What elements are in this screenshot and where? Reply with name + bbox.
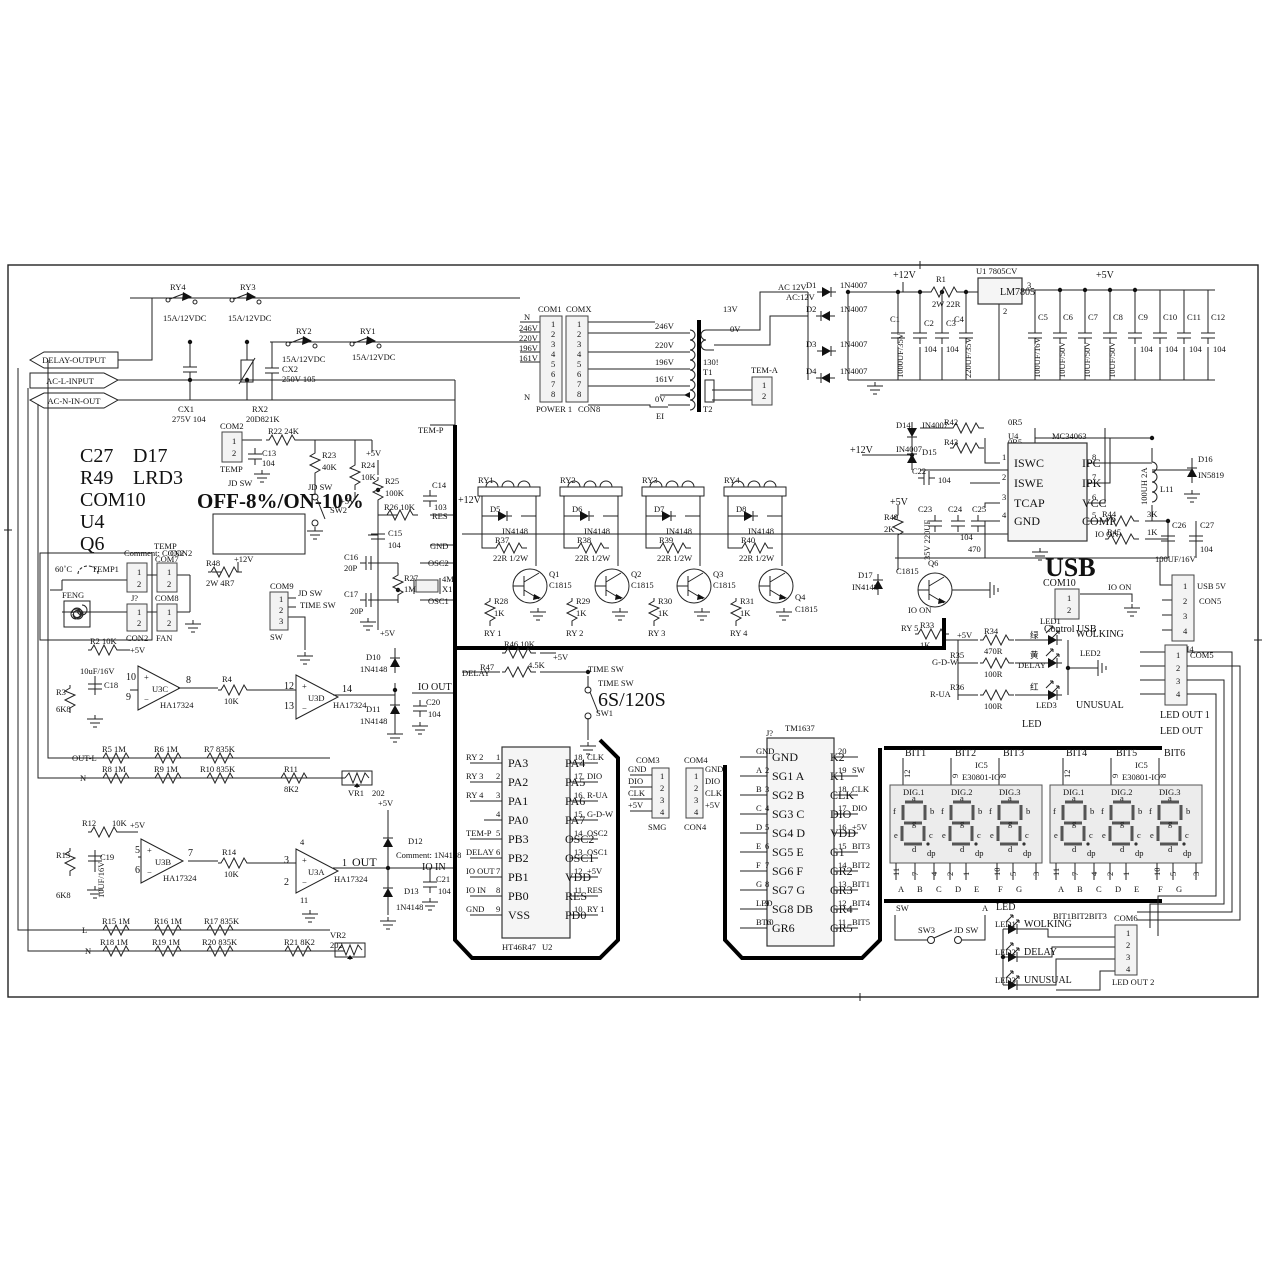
tm-net: CLK: [852, 784, 870, 794]
relay-ry1-label: RY1: [360, 326, 376, 336]
note-lrd3: LRD3: [133, 467, 183, 489]
led2-ref: LED2: [1080, 648, 1101, 658]
con2b-pin: 2: [137, 618, 141, 628]
c22-ref: C22: [912, 466, 926, 476]
d12-p5: +5V: [378, 798, 394, 808]
seg-a: a: [1168, 793, 1172, 803]
com4b-sig: CLK: [705, 788, 723, 798]
disp-bp: 7: [1070, 872, 1080, 876]
c22-val: 104: [938, 475, 952, 485]
tm-net: +5V: [852, 822, 868, 832]
ch1-qv: C1815: [549, 580, 572, 590]
tm-port: SG8 DB: [772, 902, 813, 916]
ch4-net: RY 4: [730, 628, 748, 638]
seg-c: c: [929, 830, 933, 840]
d4-ref: D4: [806, 366, 817, 376]
com3-sig: GND: [628, 764, 646, 774]
r21-ref: R21 8K2: [284, 937, 315, 947]
seg-c: c: [1137, 830, 1141, 840]
c15-ref: C15: [388, 528, 402, 538]
u3a-ref: U3A: [308, 867, 325, 877]
led-block2: LED BIT1BIT2BIT3 LED1 WOLKING LED2 DELAY…: [995, 902, 1154, 990]
wire-n: N: [524, 312, 530, 322]
feng-label: FENG: [62, 590, 84, 600]
temp-input: COM2 1 2 TEMP JD SW R22 24K C13 104 R23 …: [220, 421, 454, 638]
r14-ref: R14: [222, 847, 237, 857]
ch4-rv: 22R 1/2W: [739, 553, 774, 563]
u3b-pin7: 7: [188, 848, 193, 859]
com4b-sig: DIO: [705, 776, 720, 786]
net-temp: TEM-P: [418, 425, 444, 435]
r16-ref: R16 1M: [154, 916, 183, 926]
tm-pin-num: 6: [765, 841, 769, 851]
c8-val: 10UF/50V: [1107, 341, 1117, 378]
d15-val: IN4007: [896, 444, 922, 454]
tm-pin-num: 1: [765, 746, 769, 756]
d12-comment: Comment: 1N4148: [396, 850, 461, 860]
drv-plus12: +12V: [458, 495, 482, 506]
tm-net: F: [756, 860, 761, 870]
r18-ref: R18 1M: [100, 937, 129, 947]
com9-sw: SW: [270, 632, 283, 642]
r11-val: 8K2: [284, 784, 299, 794]
l11-val: 100UH 2A: [1139, 467, 1149, 505]
d15-ref: D15: [922, 447, 937, 457]
relay-ry4-label: RY4: [170, 282, 186, 292]
com4b-pin: 2: [694, 783, 698, 793]
driver-ch1: RY1 D5 IN4148 R37 22R 1/2W Q1 C1815 R28 …: [478, 475, 572, 638]
c7-ref: C7: [1088, 312, 1098, 322]
disp-abc: C: [936, 884, 942, 894]
disp-abc: F: [998, 884, 1003, 894]
r22-ref: R22 24K: [268, 426, 300, 436]
r25-ref: R25: [385, 476, 399, 486]
disp-bp: 11: [1051, 868, 1061, 876]
r42-val: 0R5: [1008, 417, 1022, 427]
com10-pin: 1: [1067, 593, 1071, 603]
led3-red-cn: 红: [1030, 682, 1039, 692]
seg-b: b: [1090, 806, 1094, 816]
r49-ref: R49: [884, 512, 898, 522]
tema-pin: 2: [762, 391, 766, 401]
c12-val: 104: [1213, 344, 1227, 354]
flag-ac-l-input: AC-L-INPUT: [46, 376, 94, 386]
r46-ref: R46 10K: [504, 639, 536, 649]
mcu-pin-num: 7: [496, 866, 500, 876]
com10-pin: 2: [1067, 605, 1071, 615]
tm-pin-num: 11: [838, 917, 846, 927]
com3-pin: 2: [660, 783, 664, 793]
tap-220: 220V: [655, 340, 675, 350]
led2-led-label: LED: [996, 902, 1015, 913]
c10-ref: C10: [1163, 312, 1177, 322]
fan-label: FAN: [156, 633, 172, 643]
tm-net: E: [756, 841, 761, 851]
con2-pin: 2: [137, 579, 141, 589]
com9-jdsw: JD SW: [298, 588, 322, 598]
c9-val: 104: [1140, 344, 1154, 354]
wire-161v: 161V: [519, 353, 539, 363]
u3a-pin4: 4: [300, 837, 305, 847]
c21-val: 104: [438, 886, 452, 896]
d11-ref: D11: [366, 704, 380, 714]
mcu-block: RY 2 RY 3 RY 4 TEM-P DELAY IO OUT IO IN …: [466, 747, 613, 952]
com8-label: COM8: [155, 593, 179, 603]
com1-pin: 1: [551, 319, 555, 329]
sec-0v: 0V: [730, 324, 741, 334]
dcdc-plus5: +5V: [890, 497, 909, 508]
c5-val: 100UF/16V: [1032, 337, 1042, 378]
led1-p5: +5V: [957, 630, 973, 640]
seg-c: c: [1185, 830, 1189, 840]
r25-val: 100K: [385, 488, 405, 498]
con2-label: CON2: [126, 633, 148, 643]
dcdc-section: R42 0R5 R43 0R5 D14 IN4007 IN4007 D15 +1…: [850, 417, 1224, 564]
r24-p5b: +5V: [340, 496, 356, 506]
mcu-port: PA1: [508, 794, 528, 808]
disp-bp: 1: [1121, 872, 1131, 876]
disp-abc: D: [955, 884, 961, 894]
net-out: OUT: [352, 855, 377, 869]
r48-val: 2W 4R7: [206, 578, 234, 588]
rx2-val: 20D821K: [246, 414, 280, 424]
tap-246: 246V: [655, 321, 675, 331]
mcu-pin-num: 18: [574, 752, 583, 762]
mcu-net: GND: [466, 904, 484, 914]
usb-io-on: IO ON: [1108, 582, 1131, 592]
net-gnd: GND: [430, 541, 448, 551]
mcu-net: OSC2: [587, 828, 608, 838]
seg-f: f: [989, 806, 992, 816]
r7-ref: R7 835K: [204, 744, 236, 754]
com6-label: COM6: [1114, 913, 1138, 923]
c11-ref: C11: [1187, 312, 1201, 322]
d3-val: 1N4007: [840, 339, 867, 349]
cx2-val: 250V 105: [282, 374, 316, 384]
tm-pin-num: 14: [838, 860, 847, 870]
com2-label: COM2: [220, 421, 244, 431]
mcu-net: DIO: [587, 771, 602, 781]
r47-ref: R47: [480, 662, 494, 672]
ch4-q: Q4: [795, 592, 806, 602]
u3a-part: HA17324: [334, 874, 368, 884]
seg-a: a: [1120, 793, 1124, 803]
r24-ref: R24: [361, 460, 376, 470]
net-l: L: [82, 925, 87, 935]
com9-pin: 2: [279, 605, 283, 615]
r23-ref: R23: [322, 450, 336, 460]
com4-pin: 3: [1183, 611, 1187, 621]
seg-dp: dp: [975, 848, 984, 858]
com6-pin: 1: [1126, 928, 1130, 938]
u3c-ref: U3C: [152, 684, 168, 694]
seg-a: a: [1072, 793, 1076, 803]
power1-label: POWER 1: [536, 404, 572, 414]
d12-ref: D12: [408, 836, 423, 846]
mcu-pin-num: 17: [574, 771, 583, 781]
r13-ref: R13: [56, 850, 70, 860]
disp-abc: A: [1058, 884, 1065, 894]
r10-ref: R10 835K: [200, 764, 236, 774]
c4-ref: C4: [954, 314, 965, 324]
disp-bp: 2: [945, 872, 955, 876]
svg-text:+: +: [144, 672, 149, 682]
seg-e: e: [1054, 830, 1058, 840]
ch3-net: RY 3: [648, 628, 665, 638]
sw3-label: SW3: [918, 925, 935, 935]
tm-port: SG2 B: [772, 788, 804, 802]
c27-ref: C27: [1200, 520, 1214, 530]
com3-sig: DIO: [628, 776, 643, 786]
com10-label: COM10: [1043, 578, 1076, 589]
usb5v-label: USB 5V: [1197, 581, 1227, 591]
c2-ref: C2: [924, 318, 934, 328]
d14-ref: D14: [896, 420, 911, 430]
tm-port: GR6: [772, 921, 795, 935]
q6-val: C1815: [896, 566, 919, 576]
disp-pin9: 9: [950, 774, 960, 778]
u3c-pin9: 9: [126, 692, 131, 703]
ch4-rbv: 1K: [740, 608, 751, 618]
tm-net: C: [756, 803, 762, 813]
u4-pin4-num: 4: [1002, 510, 1007, 520]
comx-label: COMX: [566, 304, 592, 314]
tm-pin-num: 5: [765, 822, 769, 832]
c1-ref: C1: [890, 314, 900, 324]
ch2-q: Q2: [631, 569, 641, 579]
wire-246v: 246V: [519, 323, 539, 333]
relay-drivers: +12V RY1 D5 IN4148 R37 22R 1/2W Q1 C1815…: [458, 475, 818, 638]
d17-ref: D17: [858, 570, 873, 580]
mcu-port: PA0: [508, 813, 528, 827]
opamp-chain2: R12 10K +5V R13 6K8 C19 10UF/16V +− 5 6 …: [56, 798, 461, 960]
r2-ref: R2 10K: [90, 636, 118, 646]
ry5-net: RY 5: [901, 623, 918, 633]
r3-ref: R3: [56, 687, 66, 697]
com9-pin: 3: [279, 616, 283, 626]
q6-section: D17 IN4148 Q6 C1815 IO ON RY 5 R33 1K: [852, 558, 998, 650]
com2-pin: 1: [232, 436, 236, 446]
u3a-pin3: 3: [284, 855, 289, 866]
disp-abc: G: [1016, 884, 1022, 894]
com3-sig: CLK: [628, 788, 646, 798]
d1-ref: D1: [806, 280, 816, 290]
seg-b: b: [1026, 806, 1030, 816]
c1-val: 1000UF/35V: [895, 332, 905, 378]
svg-text:+: +: [147, 845, 152, 855]
con8-label: CON8: [578, 404, 600, 414]
u4-ref: U4: [1008, 431, 1019, 441]
ch1-rv: 22R 1/2W: [493, 553, 528, 563]
seg-c: c: [1025, 830, 1029, 840]
ch3-rv: 22R 1/2W: [657, 553, 692, 563]
svg-text:+: +: [302, 855, 307, 865]
temp1-label: TEMP1: [92, 564, 119, 574]
r5-ref: R5 1M: [102, 744, 126, 754]
tm-pin-num: 16: [838, 822, 847, 832]
r15-ref: R15 1M: [102, 916, 131, 926]
mcu-port: PB3: [508, 832, 529, 846]
ch2-rv: 22R 1/2W: [575, 553, 610, 563]
ch1-r: R37: [495, 535, 509, 545]
schematic-sheet: DELAY-OUTPUT AC-L-INPUT AC-N-IN-OUT RY4 …: [0, 0, 1267, 1267]
mcu-pin-num: 13: [574, 847, 583, 857]
led2-wolking: WOLKING: [1024, 919, 1072, 930]
seg-e: e: [1102, 830, 1106, 840]
u3b-pin6: 6: [135, 865, 140, 876]
tm1637-part: TM1637: [785, 723, 815, 733]
r44-val: 3K: [1147, 509, 1158, 519]
tm-net: BIT1: [852, 879, 870, 889]
ch3-qv: C1815: [713, 580, 736, 590]
u4-pin6: VCC: [1082, 496, 1107, 510]
com3-pin: 1: [660, 771, 664, 781]
r11-ref: R11: [284, 764, 298, 774]
r45-ref: R45: [1107, 527, 1121, 537]
tm-net: D: [756, 822, 762, 832]
relay-ry4-rating: 15A/12VDC: [163, 313, 207, 323]
com9-label: COM9: [270, 581, 294, 591]
u3b-ref: U3B: [155, 857, 171, 867]
d2-val: 1N4007: [840, 304, 867, 314]
display-bottom-pins: 11 7 4 2 1 10 5 3 11 7 4 2 1 10 5 3 A B …: [891, 863, 1201, 894]
mcu-pin-num: 14: [574, 828, 583, 838]
cap-cx1: [183, 361, 197, 378]
led3-unusual: UNUSUAL: [1076, 700, 1124, 711]
tm-port: SG1 A: [772, 769, 805, 783]
u4-pin7: IPK: [1082, 476, 1102, 490]
time-sw-b: TIME SW: [598, 678, 634, 688]
tm-net: SW: [852, 765, 865, 775]
net-osc1: OSC1: [428, 596, 449, 606]
sw-label: SW: [896, 903, 909, 913]
com9-pin: 1: [279, 594, 283, 604]
bit4-label: BIT4: [1066, 748, 1087, 759]
schematic-canvas: DELAY-OUTPUT AC-L-INPUT AC-N-IN-OUT RY4 …: [0, 0, 1267, 1267]
disp-bp: 11: [891, 868, 901, 876]
seg-c: c: [977, 830, 981, 840]
u3b-part: HA17324: [163, 873, 197, 883]
disp-abc: B: [917, 884, 923, 894]
cx1-val: 275V 104: [172, 414, 206, 424]
seg-f: f: [1149, 806, 1152, 816]
c19-val: 10UF/16V: [96, 861, 106, 898]
c4-val: 220UF/35V: [963, 337, 973, 378]
mcu-pin-num: 2: [496, 771, 500, 781]
ch1-ry: RY1: [478, 475, 494, 485]
sw2-label: SW2: [330, 505, 347, 515]
vr1-val: 202: [372, 788, 385, 798]
led2-yellow-cn: 黄: [1030, 650, 1039, 660]
mcu-net: RY 1: [587, 904, 604, 914]
c10-val: 104: [1165, 344, 1179, 354]
com2-pin: 2: [232, 448, 236, 458]
time-sw-a: TIME SW: [588, 664, 624, 674]
seg-f: f: [1101, 806, 1104, 816]
c16-val: 20P: [344, 563, 358, 573]
mcu-net: DELAY: [466, 847, 494, 857]
tm-port: SG3 C: [772, 807, 804, 821]
driver-ch3: RY3 D7 IN4148 R39 22R 1/2W Q3 C1815 R30 …: [642, 475, 736, 638]
com4b-sig: +5V: [705, 800, 721, 810]
disp-bp: 5: [1008, 872, 1018, 876]
u3c-pin10: 10: [126, 672, 136, 683]
disp-abc: E: [1134, 884, 1139, 894]
net-n2: N: [85, 946, 91, 956]
r34-val: 470R: [984, 646, 1003, 656]
r4-val: 10K: [224, 696, 240, 706]
c12-ref: C12: [1211, 312, 1225, 322]
ch2-rb: R29: [576, 596, 590, 606]
c14-ref: C14: [432, 480, 447, 490]
c24-val: 104: [960, 532, 974, 542]
seg-b: b: [1186, 806, 1190, 816]
u4-pin3: TCAP: [1014, 496, 1045, 510]
seg-e: e: [894, 830, 898, 840]
wire-n2: N: [524, 392, 530, 402]
seg-dp: dp: [927, 848, 936, 858]
bit1-label: BIT1: [905, 748, 926, 759]
net-res: RES: [432, 511, 448, 521]
ch4-d: D8: [736, 504, 746, 514]
c26-val: 100UF/16V: [1155, 554, 1196, 564]
mcu-pin-num: 15: [574, 809, 583, 819]
ch3-rbv: 1K: [658, 608, 669, 618]
vr1-ref: VR1: [348, 788, 364, 798]
seg-e: e: [1150, 830, 1154, 840]
x1-ref: X1: [442, 584, 452, 594]
r3-val: 6K8: [56, 704, 71, 714]
opamp-chain1: R2 10K +5V 10uF/16V C18 R3 6K8 +− 10 9 8…: [56, 636, 452, 798]
r48-p12: +12V: [234, 554, 254, 564]
seg-f: f: [1053, 806, 1056, 816]
u3d-pin12: 12: [284, 681, 294, 692]
mcu-pin-num: 12: [574, 866, 583, 876]
tm-pin-num: 3: [765, 784, 769, 794]
disp-bp: 5: [1168, 872, 1178, 876]
comx-pin: 3: [577, 339, 581, 349]
c9-ref: C9: [1138, 312, 1148, 322]
c26-ref: C26: [1172, 520, 1186, 530]
com4-pin: 2: [1183, 596, 1187, 606]
r47-val: 4.5K: [528, 660, 546, 670]
comx-pin: 2: [577, 329, 581, 339]
c3-val: 104: [946, 344, 960, 354]
svg-text:+: +: [302, 681, 307, 691]
disp-pin9: 9: [1110, 774, 1120, 778]
mcu-net: IO OUT: [466, 866, 495, 876]
u1-pin2: 2: [1003, 306, 1007, 316]
d17-val: IN4148: [852, 582, 878, 592]
rectifier-psu: AC 12V AC:12V D1 1N4007 D2 1N4007 D3 1N4…: [778, 266, 1227, 394]
mcu-pin-num: 16: [574, 790, 583, 800]
r36-val: 100R: [984, 701, 1003, 711]
seg-dp: dp: [1023, 848, 1032, 858]
con5-label: CON5: [1199, 596, 1221, 606]
c7-val: 10UF/50V: [1082, 341, 1092, 378]
r1-val: 2W 22R: [932, 299, 961, 309]
tm-net: BIT2: [852, 860, 870, 870]
u3d-part: HA17324: [333, 700, 367, 710]
bit2-label: BIT2: [955, 748, 976, 759]
r24-val: 10K: [361, 472, 377, 482]
r1-ref: R1: [936, 274, 946, 284]
u1-ref: U1 7805CV: [976, 266, 1018, 276]
c21-ref: C21: [436, 874, 450, 884]
r12-val: 10K: [112, 818, 128, 828]
mcu-port: VSS: [508, 908, 530, 922]
a-label: A: [982, 903, 989, 913]
